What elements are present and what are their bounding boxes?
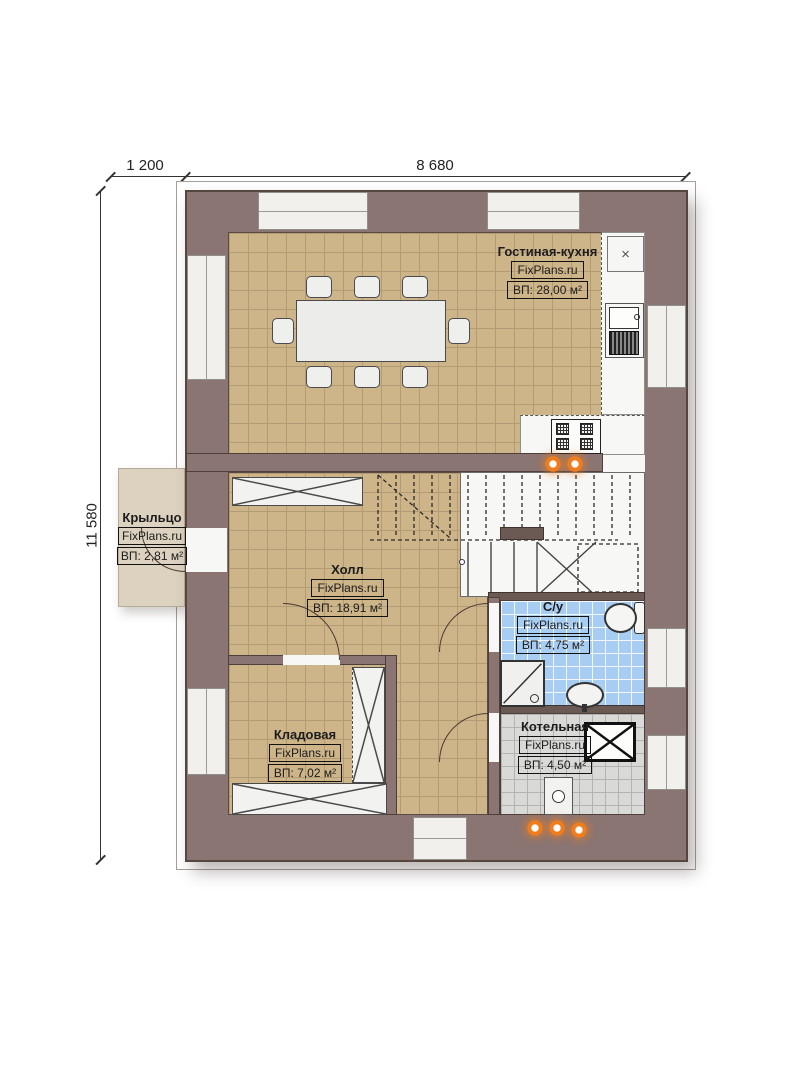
kitchen-sink-unit: [605, 303, 644, 358]
room-area: ВП: 28,00 м²: [507, 281, 588, 299]
room-brand: FixPlans.ru: [517, 616, 589, 634]
floor-plan-page: 1 200 8 680 11 580: [0, 0, 792, 1080]
window-top-2: [487, 192, 580, 230]
radiator-icon: [567, 456, 583, 472]
stove-burner: [556, 423, 569, 435]
chair: [354, 366, 380, 388]
chair: [402, 276, 428, 298]
room-label-living-kitchen: Гостиная-кухня FixPlans.ru ВП: 28,00 м²: [490, 245, 605, 299]
boiler-door-opening: [489, 713, 499, 762]
radiator-icon: [571, 822, 587, 838]
window-right-boiler: [647, 735, 686, 790]
toilet-icon: [604, 603, 637, 633]
radiator-icon: [549, 820, 565, 836]
room-label-bathroom: С/у FixPlans.ru ВП: 4,75 м²: [508, 600, 598, 654]
room-area: ВП: 4,75 м²: [516, 636, 590, 654]
window-top-1: [258, 192, 368, 230]
room-brand: FixPlans.ru: [118, 527, 186, 545]
chair: [354, 276, 380, 298]
storage-closet-bottom: [232, 783, 387, 815]
window-left-living: [187, 255, 226, 380]
room-brand: FixPlans.ru: [269, 744, 341, 762]
room-area: ВП: 2,81 м²: [117, 547, 187, 565]
room-label-boiler: Котельная FixPlans.ru ВП: 4,50 м²: [505, 720, 605, 774]
kitchen-drainer: [609, 331, 639, 355]
dimension-house-height: 11 580: [84, 491, 101, 561]
fridge-symbol: ×: [621, 246, 630, 263]
room-area: ВП: 4,50 м²: [518, 756, 592, 774]
sink-pedestal: [582, 704, 587, 712]
window-bottom: [413, 817, 467, 860]
stove-burner: [556, 438, 569, 450]
room-name: Холл: [331, 563, 364, 577]
window-left-storage: [187, 688, 226, 775]
dimension-line-top: [110, 176, 685, 177]
room-brand: FixPlans.ru: [311, 579, 383, 597]
room-name: С/у: [543, 600, 563, 614]
room-label-porch: Крыльцо FixPlans.ru ВП: 2,81 м²: [116, 511, 188, 565]
water-heater-dial: [552, 790, 565, 803]
stove-icon: [551, 419, 601, 454]
radiator-icon: [527, 820, 543, 836]
room-name: Крыльцо: [122, 511, 181, 525]
kitchen-passage: [601, 455, 645, 472]
chair: [272, 318, 294, 344]
room-brand: FixPlans.ru: [519, 736, 591, 754]
room-label-hall: Холл FixPlans.ru ВП: 18,91 м²: [290, 563, 405, 617]
room-area: ВП: 18,91 м²: [307, 599, 388, 617]
radiator-icon: [545, 456, 561, 472]
kitchen-faucet-icon: [634, 314, 640, 320]
chair: [306, 366, 332, 388]
bathroom-door-opening: [489, 603, 499, 652]
chair: [402, 366, 428, 388]
stove-burner: [580, 423, 593, 435]
room-name: Котельная: [521, 720, 589, 734]
window-right-bathroom: [647, 628, 686, 688]
room-area: ВП: 7,02 м²: [268, 764, 342, 782]
room-brand: FixPlans.ru: [511, 261, 583, 279]
dining-table: [296, 300, 446, 362]
stove-burner: [580, 438, 593, 450]
room-name: Кладовая: [274, 728, 336, 742]
room-label-storage: Кладовая FixPlans.ru ВП: 7,02 м²: [250, 728, 360, 782]
fridge-icon: ×: [607, 236, 644, 272]
shower-tray-icon: [500, 660, 545, 707]
interior-wall-living-hall: [186, 453, 603, 472]
stair-landing-rail: [500, 527, 544, 540]
window-right-kitchen: [647, 305, 686, 388]
room-name: Гостиная-кухня: [498, 245, 598, 259]
shower-drain: [530, 694, 539, 703]
chair: [306, 276, 332, 298]
water-heater-icon: [544, 777, 573, 815]
dimension-porch-width: 1 200: [105, 157, 185, 174]
hall-wardrobe: [232, 477, 363, 506]
entrance-door-opening: [186, 528, 227, 572]
dimension-house-width: 8 680: [185, 157, 685, 174]
chair: [448, 318, 470, 344]
